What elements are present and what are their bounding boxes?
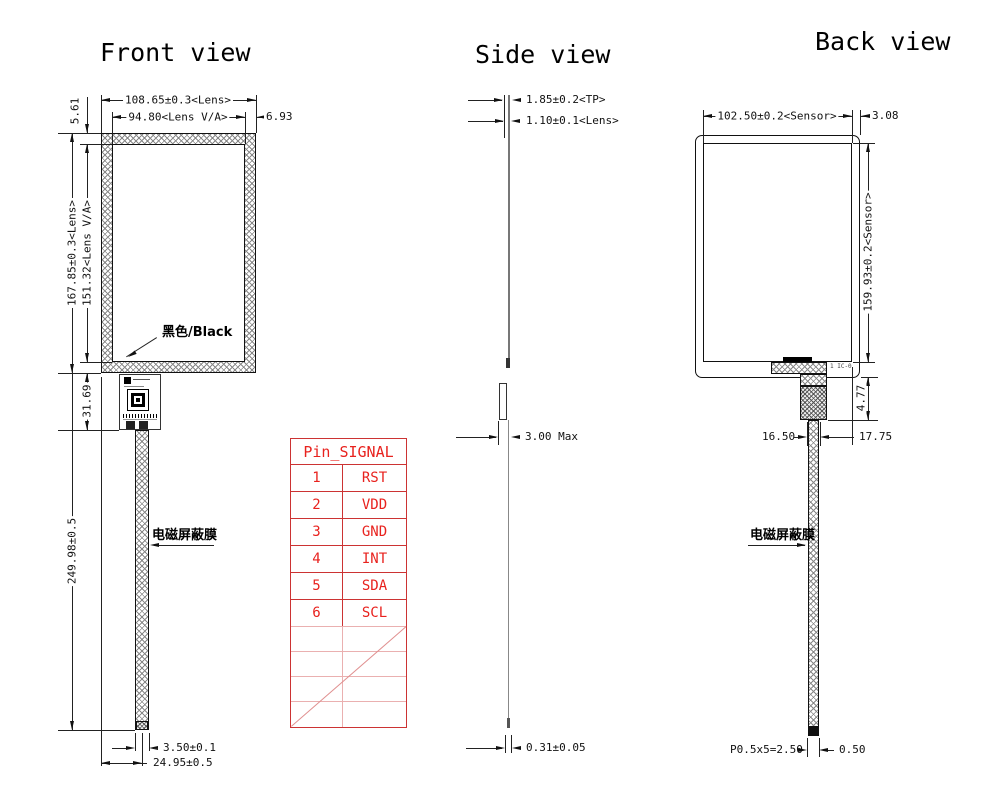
ext-line [861, 377, 878, 378]
arrow-head [797, 543, 806, 547]
arrow-head [798, 748, 807, 752]
connector-strip [771, 362, 827, 374]
back-fpc-tail [808, 420, 819, 727]
dim-tail-offset-right: 17.75 [857, 431, 894, 442]
dim-sensor-width: 102.50±0.2<Sensor> [715, 111, 838, 122]
dim-stiffener-height: 4.77 [856, 383, 867, 414]
arrow-head [861, 114, 870, 118]
shield-film-label: 电磁屏蔽膜 [750, 528, 815, 543]
dim-pad-pitch: P0.5x5=2.50 [728, 744, 805, 755]
drawing-canvas: Front view 黑色/Black 电磁屏蔽膜 [0, 0, 1000, 806]
ext-line [828, 420, 878, 421]
dim-line [828, 750, 834, 751]
arrow-head [843, 114, 852, 118]
dim-tail-offset-left: 16.50 [760, 431, 797, 442]
dim-sensor-height: 159.93±0.2<Sensor> [863, 190, 874, 313]
back-tail-end [808, 727, 819, 736]
connector-neck [800, 374, 827, 386]
arrow-head [798, 435, 807, 439]
connector-note: 1 IC-0 [830, 364, 852, 370]
back-sensor-outline [703, 143, 852, 362]
ext-line [853, 362, 875, 363]
stiffener-block [800, 386, 827, 420]
ext-line [807, 738, 808, 757]
ext-line [807, 422, 808, 446]
ext-line [852, 367, 853, 445]
back-view-title: Back view [815, 27, 950, 56]
dim-sensor-right-gap: 3.08 [870, 110, 901, 121]
ext-line [853, 143, 875, 144]
arrow-head [866, 143, 870, 152]
arrow-head [866, 353, 870, 362]
dim-line [829, 437, 854, 438]
arrow-head [820, 435, 829, 439]
back-view: Back view 1 IC-0 电磁屏蔽膜 102.50±0.2<Sensor… [0, 0, 1000, 806]
dim-tail-end-width: 0.50 [837, 744, 868, 755]
arrow-head [703, 114, 712, 118]
arrow-head [819, 748, 828, 752]
ext-line [852, 110, 853, 143]
